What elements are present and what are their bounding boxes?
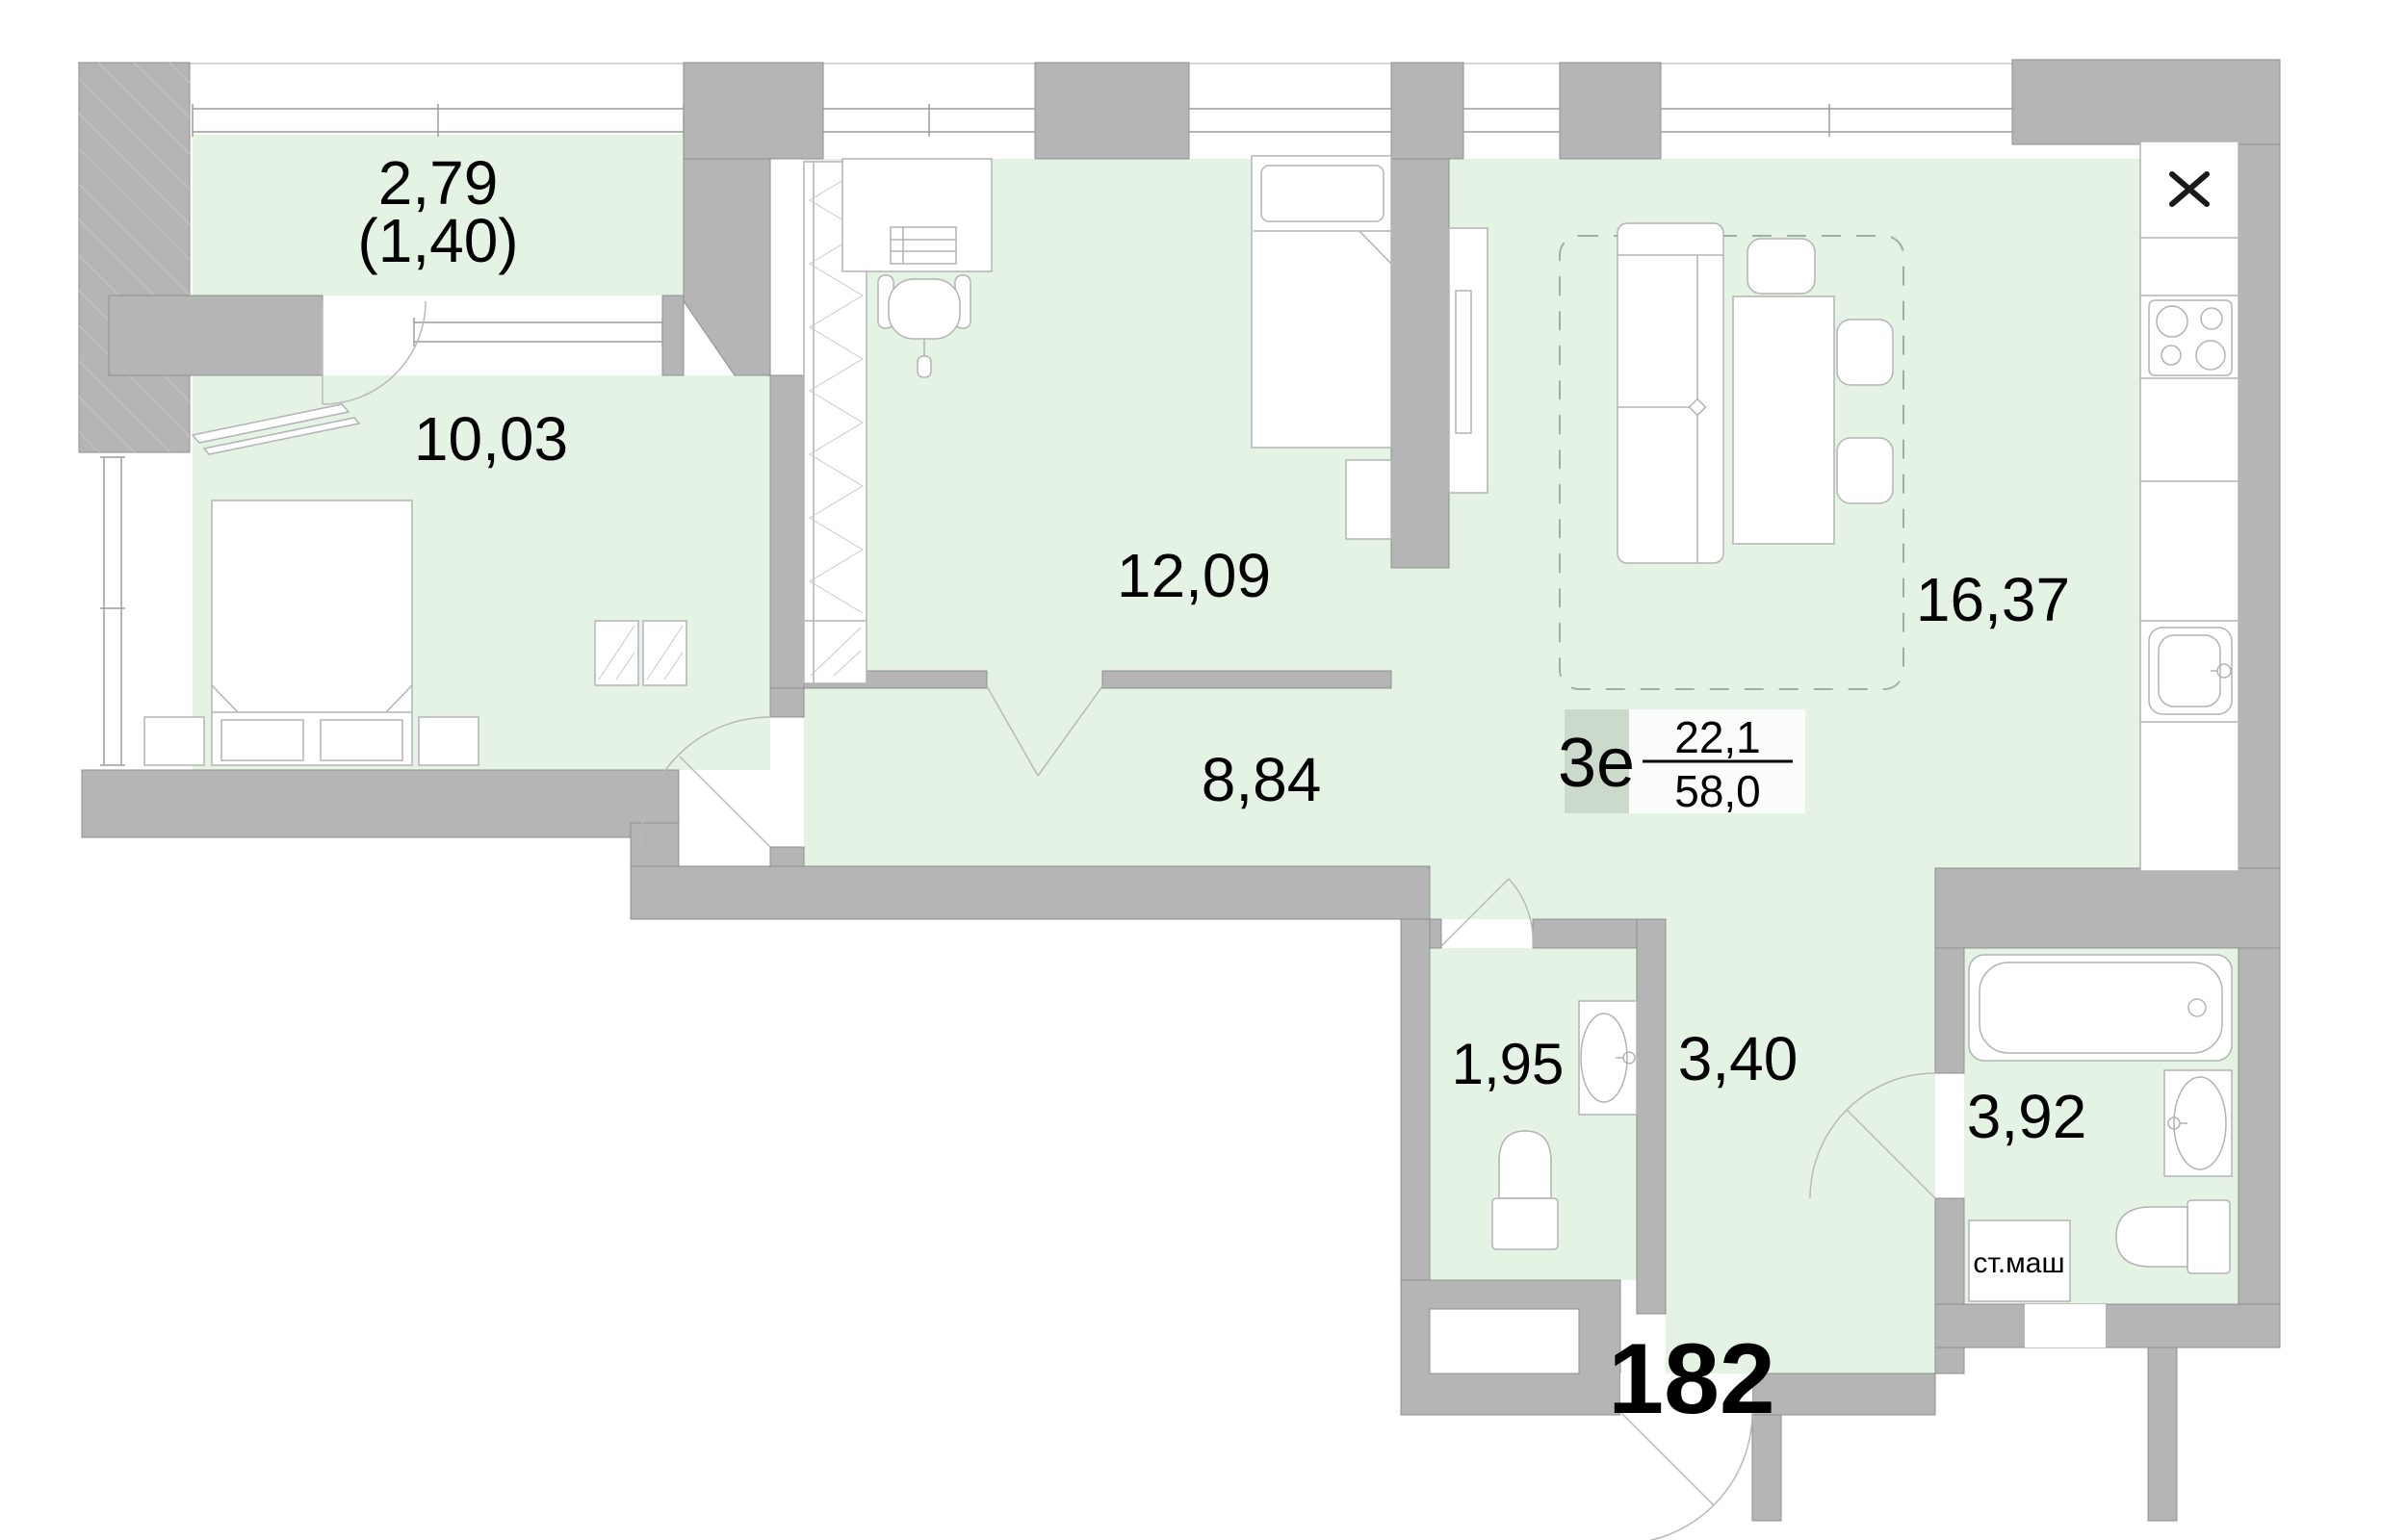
- wall-top-b: [1035, 63, 1189, 159]
- double-bed: [212, 500, 412, 765]
- tv: [1456, 291, 1471, 433]
- apartment-number: 182: [1608, 1323, 1775, 1435]
- floor-plan: 3е 22,1 58,0 2,79 (1,40) 10,03 12,09 16,…: [0, 0, 2381, 1540]
- keyboard: [891, 227, 956, 264]
- wall-left-pillar-hatch: [79, 63, 190, 452]
- opening-12-living-floor: [1391, 568, 1449, 688]
- wall-stub-right: [2148, 1347, 2177, 1521]
- floor-plan-drawing: 3е 22,1 58,0 2,79 (1,40) 10,03 12,09 16,…: [0, 0, 2381, 1540]
- single-bed: [1252, 156, 1391, 448]
- wall-top-d: [1560, 63, 1661, 159]
- wall-right-exterior: [2239, 144, 2280, 1347]
- wall-under-balcony-right: [662, 295, 684, 375]
- total-area-text: 58,0: [1674, 766, 1761, 816]
- bathroom-toilet: [2116, 1200, 2230, 1273]
- hallway-floor: [804, 688, 1449, 866]
- wall-step-patch: [631, 823, 679, 869]
- wall-corridor-bath-up: [1935, 948, 1964, 1073]
- wall-bedroom-bottom: [82, 770, 679, 837]
- room12-area-label: 12,09: [1117, 541, 1271, 610]
- wall-wc-corridor: [1637, 919, 1666, 1314]
- kitchen-living-area-label: 16,37: [1916, 565, 2070, 634]
- wall-hall-bottom: [631, 866, 1430, 919]
- shaft-niche: [1430, 1309, 1579, 1373]
- washing-machine-label: ст.маш: [1973, 1247, 2064, 1279]
- living-area-text: 22,1: [1674, 712, 1761, 762]
- wall-bedroom-hall-bottom: [770, 847, 804, 866]
- wall-bath-bottom: [1935, 1304, 2280, 1347]
- hallway-area-label: 8,84: [1202, 745, 1322, 814]
- bedside-table: [1346, 460, 1391, 539]
- bathroom-area-label: 3,92: [1967, 1082, 2087, 1151]
- nightstand-left: [144, 717, 204, 765]
- chair-right-1: [1837, 320, 1893, 385]
- wall-top-partition: [1391, 63, 1463, 159]
- kitchen-sink: [2149, 628, 2232, 714]
- wall-hall-top-right: [1102, 671, 1391, 688]
- balcony-area-note-label: (1,40): [357, 206, 518, 275]
- wall-bath-bottom-gap: [2025, 1304, 2106, 1347]
- bathroom-sink: [2164, 1070, 2232, 1176]
- wc-sink: [1579, 1001, 1637, 1115]
- wall-wc-top-b: [1533, 919, 1637, 948]
- chair-right-2: [1837, 438, 1893, 503]
- wc-area-label: 1,95: [1452, 1032, 1565, 1096]
- wall-wc-top-a: [1430, 919, 1441, 948]
- wall-partition-12-living: [1391, 159, 1449, 568]
- wall-entrance-right: [1752, 1373, 1935, 1415]
- wall-bedroom-hall-top: [770, 688, 804, 717]
- sofa: [1618, 223, 1723, 563]
- apartment-type-text: 3е: [1558, 725, 1635, 802]
- nightstand-right: [419, 717, 479, 765]
- apartment-type-label: 3е 22,1 58,0: [1558, 709, 1805, 816]
- chair-top: [1747, 239, 1815, 294]
- wc-toilet: [1492, 1131, 1558, 1249]
- bathtub: [1969, 955, 2232, 1061]
- wall-top-right-corner: [2012, 60, 2280, 144]
- wall-under-balcony: [109, 295, 323, 375]
- tv-console: [1449, 228, 1488, 493]
- corridor-floor: [1666, 866, 1935, 1373]
- kitchen-counter: [2140, 141, 2239, 871]
- stove: [2149, 300, 2232, 375]
- corridor-area-label: 3,40: [1678, 1024, 1799, 1093]
- desk: [842, 159, 992, 271]
- wall-top-a: [684, 63, 823, 159]
- wall-bedroom-room12: [770, 375, 804, 688]
- wall-bath-top-band: [1935, 868, 2280, 948]
- wall-wc-left: [1401, 919, 1430, 1314]
- bedroom-area-label: 10,03: [414, 404, 568, 474]
